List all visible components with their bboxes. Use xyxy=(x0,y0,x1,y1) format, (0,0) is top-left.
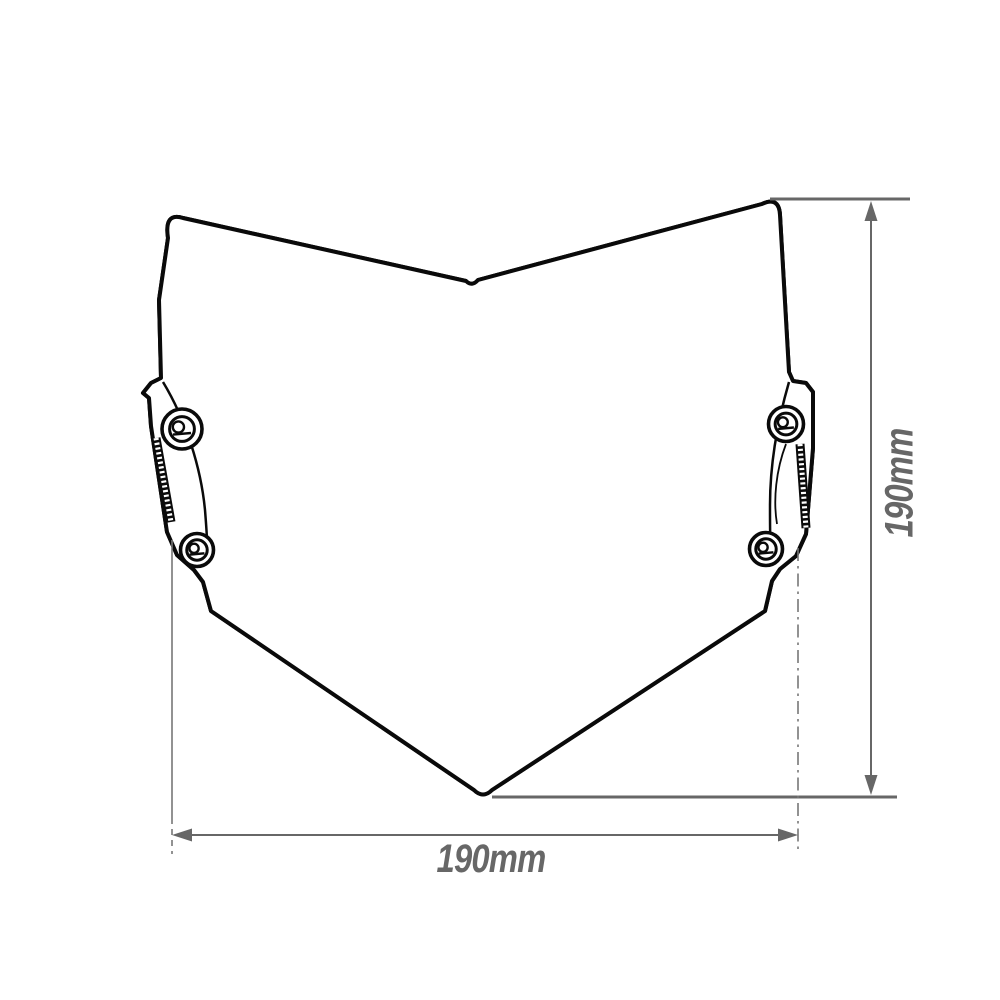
screw-icon xyxy=(750,533,783,566)
diagram-canvas: 190mm 190mm xyxy=(0,0,1000,1000)
height-arrow-down xyxy=(865,775,878,795)
guard-plate-edge xyxy=(143,202,813,795)
height-dimension-label: 190mm xyxy=(876,429,921,538)
screw-icon xyxy=(162,409,202,449)
screw-icon xyxy=(181,534,214,567)
width-arrow-left xyxy=(172,829,192,842)
headlight-guard-diagram: 190mm 190mm xyxy=(0,0,1000,1000)
width-arrow-right xyxy=(778,829,798,842)
width-dimension-label: 190mm xyxy=(437,836,546,881)
screw-icon xyxy=(769,407,804,442)
knurl-strip-right xyxy=(800,444,806,528)
height-arrow-up xyxy=(865,201,878,221)
